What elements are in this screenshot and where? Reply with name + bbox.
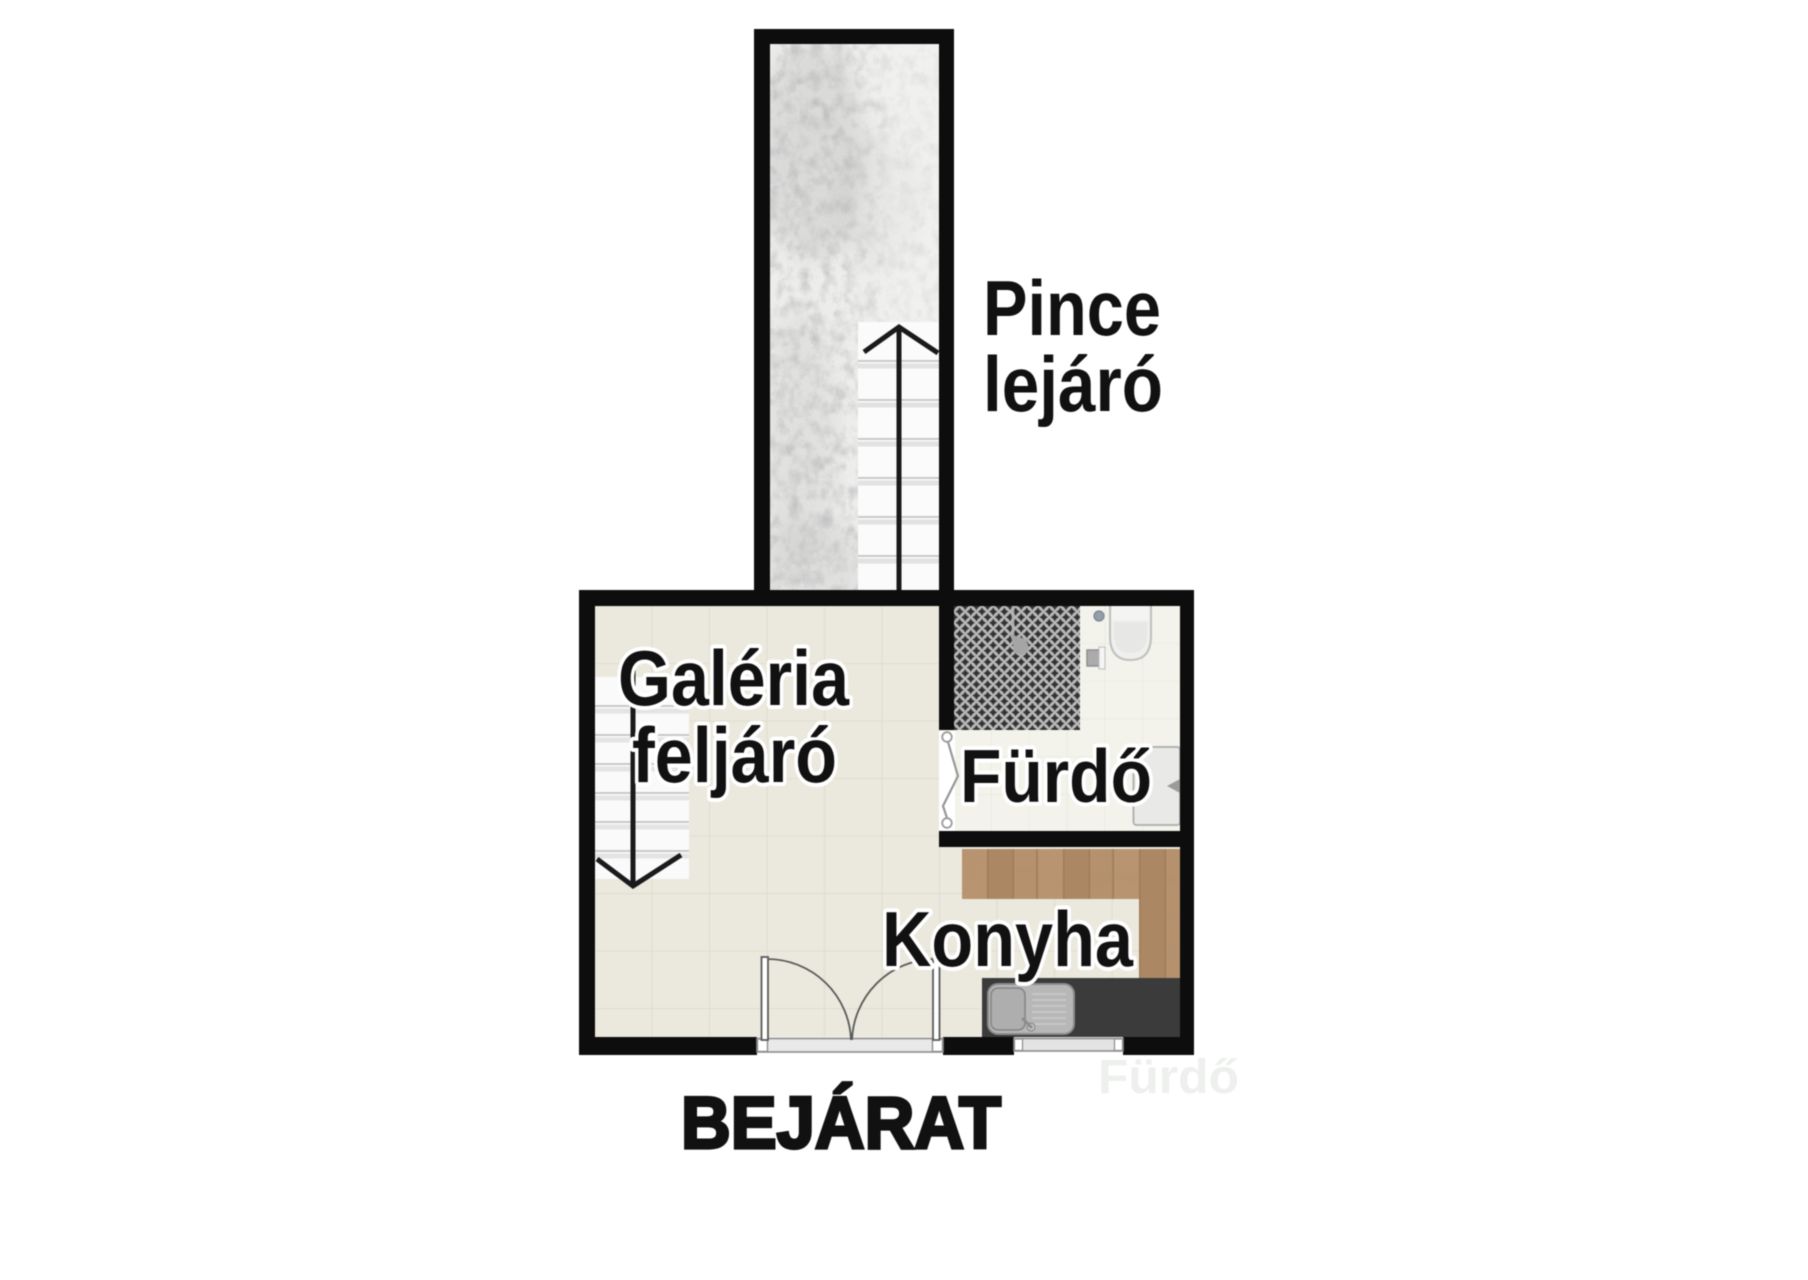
svg-text:feljáró: feljáró bbox=[632, 711, 837, 799]
svg-text:Fürdő: Fürdő bbox=[960, 734, 1152, 818]
svg-text:Pince: Pince bbox=[983, 264, 1161, 352]
svg-text:BEJÁRAT: BEJÁRAT bbox=[681, 1083, 1001, 1164]
svg-text:lejáró: lejáró bbox=[983, 340, 1163, 428]
svg-text:Galéria: Galéria bbox=[618, 634, 850, 722]
svg-text:Konyha: Konyha bbox=[882, 895, 1134, 983]
svg-text:Fürdő: Fürdő bbox=[1098, 1051, 1239, 1104]
